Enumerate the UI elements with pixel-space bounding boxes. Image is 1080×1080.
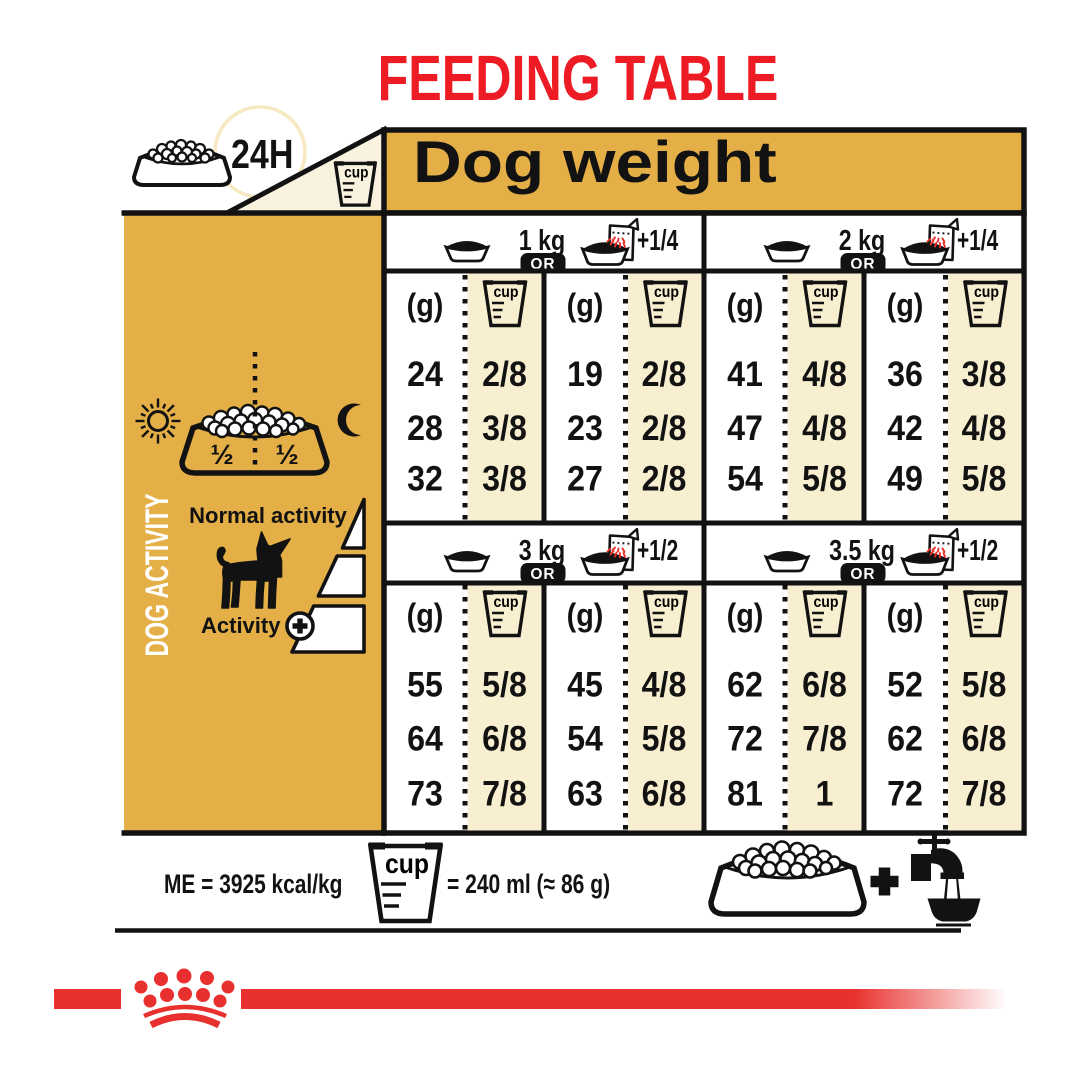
svg-text:27: 27 (567, 460, 603, 499)
svg-text:6/8: 6/8 (482, 720, 527, 759)
svg-text:2/8: 2/8 (642, 410, 687, 449)
svg-text:1: 1 (816, 775, 834, 814)
svg-text:(g): (g) (887, 598, 924, 634)
svg-text:cup: cup (385, 848, 429, 880)
svg-text:24: 24 (407, 356, 443, 395)
svg-text:28: 28 (407, 410, 443, 449)
svg-text:+1/2: +1/2 (957, 535, 998, 567)
svg-text:(g): (g) (727, 598, 764, 634)
svg-text:72: 72 (727, 720, 763, 759)
svg-text:7/8: 7/8 (802, 720, 847, 759)
svg-text:24H: 24H (231, 131, 293, 177)
svg-text:4/8: 4/8 (802, 356, 847, 395)
svg-text:62: 62 (727, 666, 763, 705)
svg-text:72: 72 (887, 775, 923, 814)
svg-text:49: 49 (887, 460, 923, 499)
svg-text:2 kg: 2 kg (839, 223, 885, 256)
svg-text:4/8: 4/8 (642, 666, 687, 705)
svg-text:(g): (g) (407, 598, 444, 634)
svg-text:+1/4: +1/4 (637, 225, 678, 257)
svg-text:54: 54 (567, 720, 603, 759)
svg-text:FEEDING TABLE: FEEDING TABLE (378, 43, 779, 114)
svg-text:81: 81 (727, 775, 763, 814)
svg-text:Activity: Activity (201, 613, 281, 638)
svg-text:5/8: 5/8 (802, 460, 847, 499)
svg-text:(g): (g) (567, 598, 604, 634)
svg-text:OR: OR (850, 566, 875, 583)
svg-text:41: 41 (727, 356, 763, 395)
svg-text:5/8: 5/8 (962, 666, 1007, 705)
svg-text:5/8: 5/8 (642, 720, 687, 759)
svg-text:3/8: 3/8 (962, 356, 1007, 395)
svg-text:(g): (g) (887, 288, 924, 324)
svg-text:3/8: 3/8 (482, 410, 527, 449)
svg-text:63: 63 (567, 775, 603, 814)
svg-text:+1/2: +1/2 (637, 535, 678, 567)
svg-text:62: 62 (887, 720, 923, 759)
svg-text:Dog weight: Dog weight (413, 130, 777, 195)
svg-text:32: 32 (407, 460, 443, 499)
svg-text:2/8: 2/8 (482, 356, 527, 395)
svg-text:DOG ACTIVITY: DOG ACTIVITY (139, 493, 175, 656)
svg-text:52: 52 (887, 666, 923, 705)
svg-text:19: 19 (567, 356, 603, 395)
svg-text:= 240 ml (≈ 86 g): = 240 ml (≈ 86 g) (447, 870, 610, 900)
svg-text:2/8: 2/8 (642, 356, 687, 395)
svg-text:3 kg: 3 kg (519, 533, 565, 566)
svg-text:ME = 3925 kcal/kg: ME = 3925 kcal/kg (164, 870, 342, 900)
svg-text:2/8: 2/8 (642, 460, 687, 499)
svg-text:64: 64 (407, 720, 443, 759)
svg-text:Normal activity: Normal activity (189, 503, 347, 528)
svg-text:6/8: 6/8 (802, 666, 847, 705)
svg-text:4/8: 4/8 (962, 410, 1007, 449)
svg-text:7/8: 7/8 (962, 775, 1007, 814)
svg-text:½: ½ (275, 439, 298, 470)
svg-text:45: 45 (567, 666, 603, 705)
svg-text:OR: OR (530, 566, 555, 583)
svg-text:+1/4: +1/4 (957, 225, 998, 257)
svg-text:½: ½ (210, 439, 233, 470)
svg-text:5/8: 5/8 (482, 666, 527, 705)
svg-text:(g): (g) (567, 288, 604, 324)
svg-text:3/8: 3/8 (482, 460, 527, 499)
svg-text:1 kg: 1 kg (519, 223, 565, 256)
svg-text:(g): (g) (727, 288, 764, 324)
svg-text:73: 73 (407, 775, 443, 814)
svg-text:6/8: 6/8 (962, 720, 1007, 759)
svg-text:23: 23 (567, 410, 603, 449)
svg-text:7/8: 7/8 (482, 775, 527, 814)
svg-text:5/8: 5/8 (962, 460, 1007, 499)
svg-text:42: 42 (887, 410, 923, 449)
svg-text:3.5 kg: 3.5 kg (829, 533, 895, 566)
svg-text:36: 36 (887, 356, 923, 395)
svg-text:4/8: 4/8 (802, 410, 847, 449)
svg-text:54: 54 (727, 460, 763, 499)
svg-text:47: 47 (727, 410, 763, 449)
svg-text:6/8: 6/8 (642, 775, 687, 814)
svg-text:(g): (g) (407, 288, 444, 324)
svg-text:55: 55 (407, 666, 443, 705)
